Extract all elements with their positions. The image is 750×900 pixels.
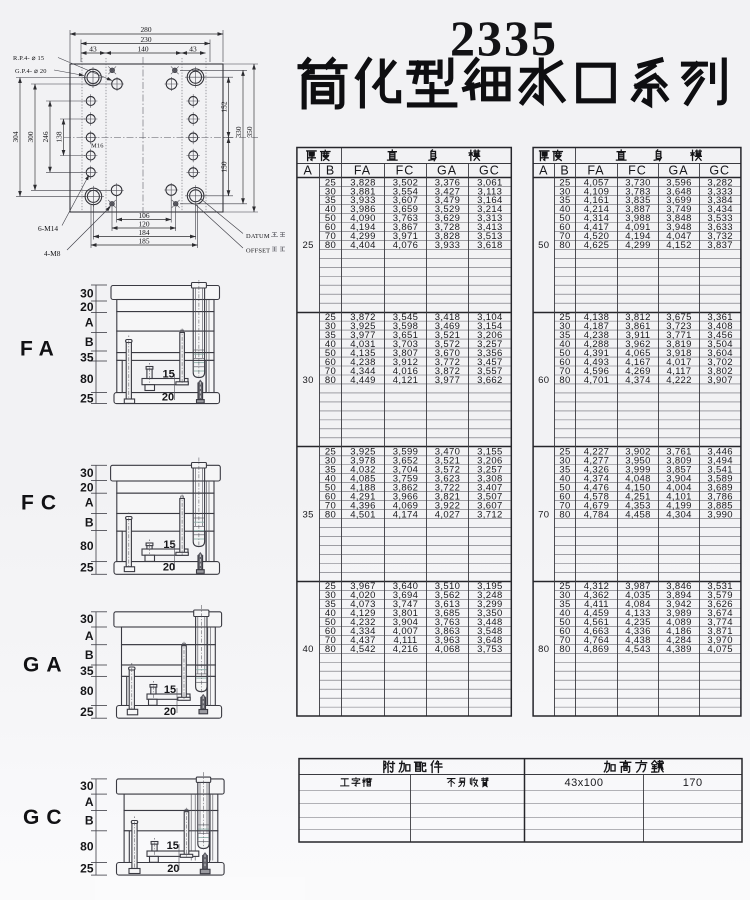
svg-text:M16: M16 <box>91 143 104 150</box>
svg-text:350: 350 <box>245 126 254 137</box>
svg-text:246: 246 <box>41 131 50 142</box>
svg-text:FA: FA <box>20 338 61 361</box>
svg-text:35: 35 <box>80 350 94 364</box>
svg-text:B: B <box>85 335 94 349</box>
svg-text:304: 304 <box>11 131 20 142</box>
svg-text:A: A <box>85 496 94 510</box>
svg-text:FC: FC <box>21 492 63 515</box>
svg-text:15: 15 <box>163 539 175 551</box>
svg-text:152: 152 <box>220 101 229 112</box>
svg-text:20: 20 <box>162 392 174 404</box>
svg-text:804,7014,3744,2223,907: 804,7014,3744,2223,907 <box>559 375 733 386</box>
svg-text:GC: GC <box>709 163 730 177</box>
svg-text:60: 60 <box>538 375 549 386</box>
svg-text:80: 80 <box>80 684 94 698</box>
svg-text:804,7844,4584,3043,990: 804,7844,4584,3043,990 <box>559 509 733 520</box>
svg-text:330: 330 <box>234 126 243 137</box>
svg-text:30: 30 <box>80 466 94 480</box>
svg-text:20: 20 <box>167 863 179 875</box>
svg-text:30: 30 <box>80 287 94 301</box>
svg-text:30: 30 <box>80 779 94 793</box>
svg-text:25: 25 <box>80 705 94 719</box>
svg-text:35: 35 <box>80 664 94 678</box>
svg-text:6-M14: 6-M14 <box>38 224 58 233</box>
svg-text:GC: GC <box>479 163 500 177</box>
svg-text:4-M8: 4-M8 <box>44 249 61 258</box>
svg-text:25: 25 <box>80 392 94 406</box>
svg-text:140: 140 <box>137 45 148 54</box>
svg-text:A: A <box>85 795 94 809</box>
svg-text:30: 30 <box>80 612 94 626</box>
svg-text:280: 280 <box>140 25 151 34</box>
svg-text:80: 80 <box>538 644 549 655</box>
svg-text:150: 150 <box>220 161 229 172</box>
svg-text:B: B <box>326 163 335 177</box>
svg-text:40: 40 <box>303 644 314 655</box>
svg-text:43: 43 <box>89 45 97 54</box>
svg-text:GA: GA <box>668 163 688 177</box>
svg-text:80: 80 <box>80 372 94 386</box>
svg-text:20: 20 <box>80 300 94 314</box>
svg-text:B: B <box>85 814 94 828</box>
svg-text:25: 25 <box>80 862 94 876</box>
svg-text:50: 50 <box>538 240 549 251</box>
svg-text:804,6254,2994,1523,837: 804,6254,2994,1523,837 <box>559 240 733 251</box>
svg-text:FA: FA <box>354 163 371 177</box>
svg-text:15: 15 <box>167 840 179 852</box>
svg-text:A: A <box>539 163 548 177</box>
svg-text:GA: GA <box>437 163 457 177</box>
svg-text:185: 185 <box>138 237 149 246</box>
svg-text:30: 30 <box>303 375 314 386</box>
svg-text:FC: FC <box>396 163 415 177</box>
svg-text:FA: FA <box>587 163 604 177</box>
svg-text:70: 70 <box>538 510 549 521</box>
svg-text:300: 300 <box>26 131 35 142</box>
svg-text:25: 25 <box>303 240 314 251</box>
svg-text:GA: GA <box>23 654 69 677</box>
svg-text:B: B <box>85 648 94 662</box>
svg-text:B: B <box>85 516 94 530</box>
svg-text:43: 43 <box>189 45 197 54</box>
svg-text:80: 80 <box>80 840 94 854</box>
svg-text:20: 20 <box>80 481 94 495</box>
svg-text:15: 15 <box>162 369 174 381</box>
svg-text:35: 35 <box>303 510 314 521</box>
svg-text:230: 230 <box>140 35 151 44</box>
svg-text:80: 80 <box>80 539 94 553</box>
svg-text:25: 25 <box>80 561 94 575</box>
svg-text:DATUM: DATUM <box>246 233 270 240</box>
svg-text:GC: GC <box>23 806 69 829</box>
svg-text:R.P.4- ⌀ 15: R.P.4- ⌀ 15 <box>13 55 44 62</box>
svg-text:A: A <box>85 629 94 643</box>
svg-text:804,8694,5434,3894,075: 804,8694,5434,3894,075 <box>559 644 733 655</box>
svg-text:170: 170 <box>683 777 703 789</box>
svg-text:43x100: 43x100 <box>564 777 603 789</box>
svg-text:G.P.4- ⌀ 20: G.P.4- ⌀ 20 <box>15 68 47 75</box>
svg-text:FC: FC <box>628 163 647 177</box>
svg-text:15: 15 <box>164 684 176 696</box>
svg-text:OFFSET: OFFSET <box>246 248 270 255</box>
svg-text:20: 20 <box>164 706 176 718</box>
svg-text:A: A <box>304 163 313 177</box>
svg-text:138: 138 <box>55 131 64 142</box>
svg-text:A: A <box>85 316 94 330</box>
svg-text:B: B <box>560 163 569 177</box>
svg-text:20: 20 <box>163 562 175 574</box>
